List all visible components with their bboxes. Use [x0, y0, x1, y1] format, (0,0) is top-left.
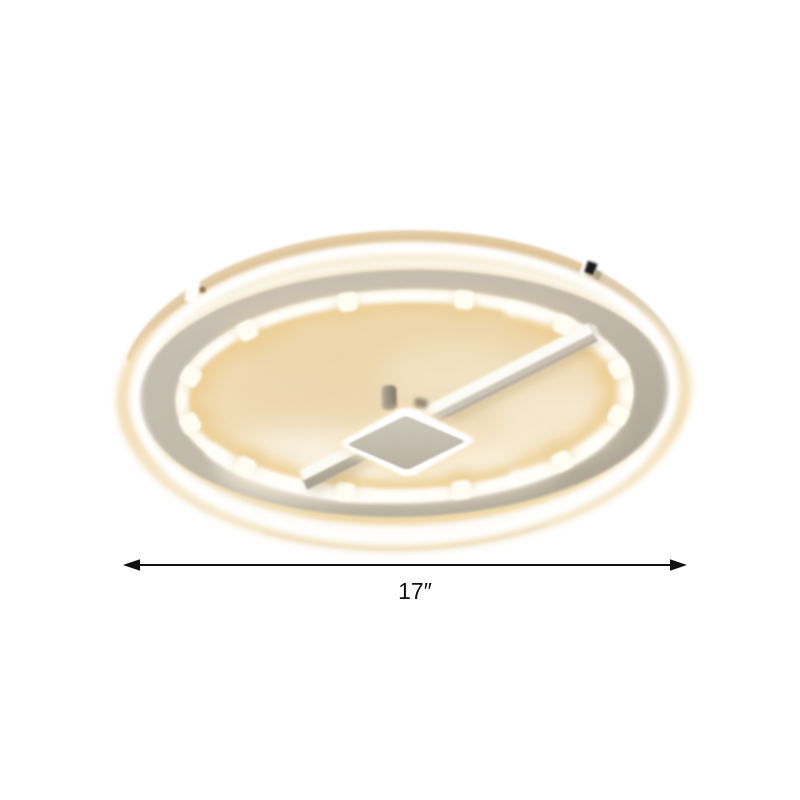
- svg-text:17″: 17″: [398, 578, 432, 604]
